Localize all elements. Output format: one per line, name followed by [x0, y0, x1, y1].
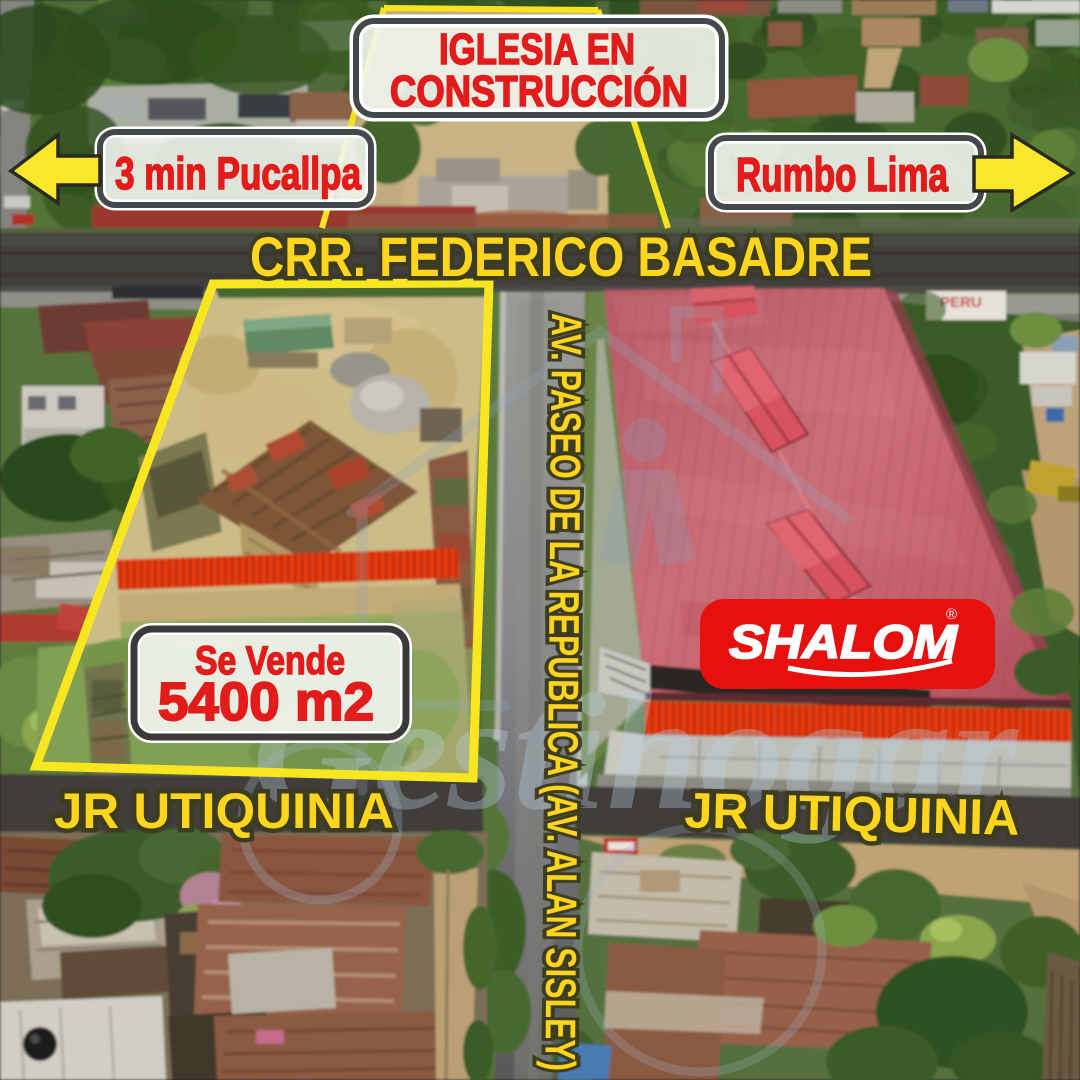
svg-text:AV. PASEO DE LA REPUBLICA (AV.: AV. PASEO DE LA REPUBLICA (AV. ALAN SISL…: [535, 313, 590, 1071]
svg-text:5400 m2: 5400 m2: [158, 672, 374, 732]
svg-text:3 min Pucallpa: 3 min Pucallpa: [115, 148, 362, 199]
svg-text:JR UTIQUINIA: JR UTIQUINIA: [684, 782, 1020, 846]
svg-text:CRR. FEDERICO BASADRE: CRR. FEDERICO BASADRE: [250, 225, 872, 288]
svg-text:®: ®: [946, 606, 957, 623]
svg-text:CONSTRUCCIÓN: CONSTRUCCIÓN: [390, 66, 688, 116]
svg-text:PERU: PERU: [940, 294, 982, 311]
svg-text:Rumbo Lima: Rumbo Lima: [736, 149, 948, 202]
svg-text:SHALOM: SHALOM: [729, 615, 958, 668]
svg-text:JR UTIQUINIA: JR UTIQUINIA: [54, 783, 394, 839]
